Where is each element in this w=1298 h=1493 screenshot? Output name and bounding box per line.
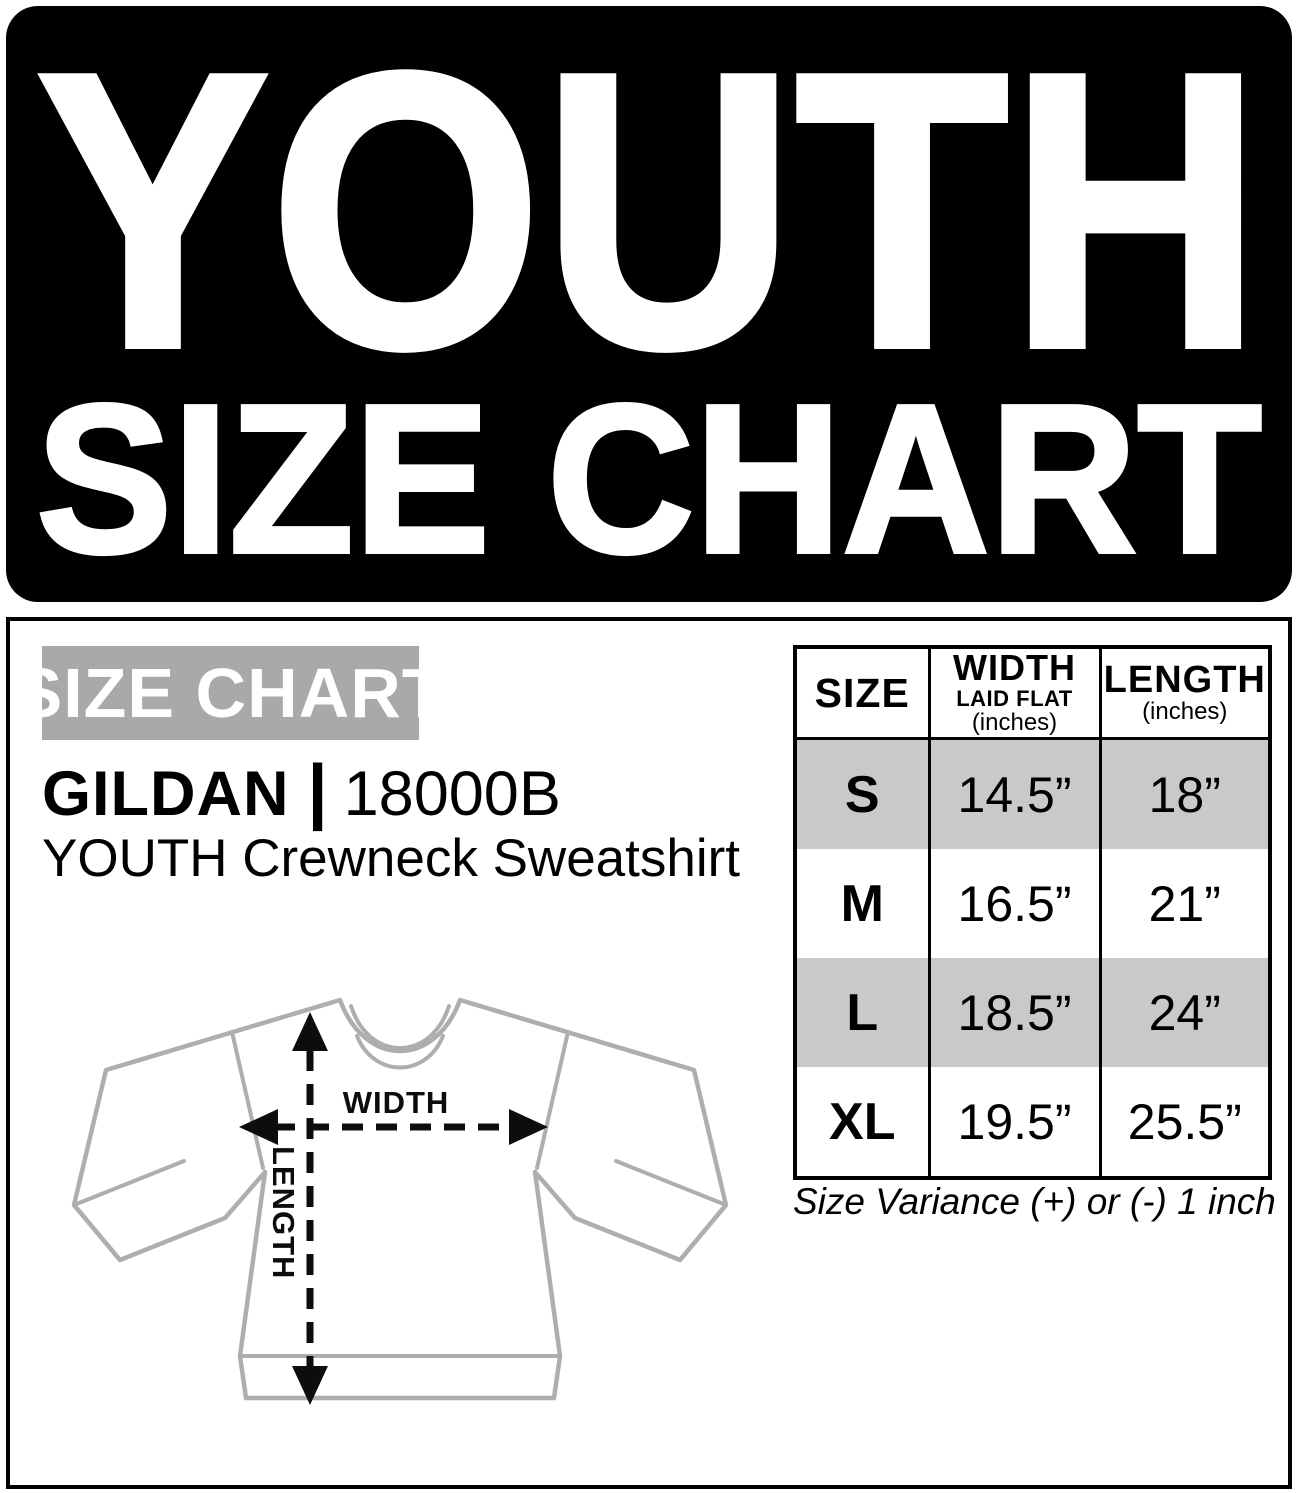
header-size: SIZE	[795, 647, 929, 739]
section-title: SIZE CHART	[16, 653, 446, 733]
product-name: YOUTH Crewneck Sweatshirt	[42, 828, 740, 889]
cell-size: L	[795, 958, 929, 1067]
header-length: LENGTH (inches)	[1100, 647, 1270, 739]
model-number: 18000B	[344, 758, 561, 830]
size-variance-note: Size Variance (+) or (-) 1 inch	[793, 1181, 1268, 1223]
width-arrow-label: WIDTH	[343, 1085, 450, 1120]
brand-name: GILDAN	[42, 758, 289, 830]
brand-separator: |	[307, 750, 327, 832]
title-banner-text: YOUTH SIZE CHART	[6, 6, 1292, 602]
section-title-banner: SIZE CHART	[42, 646, 419, 740]
banner-title-line2: SIZE CHART	[36, 360, 1262, 597]
cell-width: 19.5”	[929, 1067, 1100, 1178]
cell-width: 18.5”	[929, 958, 1100, 1067]
size-table: SIZE WIDTH LAID FLAT (inches) LENGTH (in…	[793, 645, 1272, 1180]
title-banner: YOUTH SIZE CHART	[6, 6, 1292, 602]
header-width: WIDTH LAID FLAT (inches)	[929, 647, 1100, 739]
cell-size: M	[795, 849, 929, 958]
cell-width: 16.5”	[929, 849, 1100, 958]
cell-size: XL	[795, 1067, 929, 1178]
sweatshirt-outline	[74, 1000, 726, 1398]
table-row-l: L 18.5” 24”	[795, 958, 1270, 1067]
cell-size: S	[795, 739, 929, 850]
youth-size-chart-graphic: YOUTH SIZE CHART SIZE CHART GILDAN | 180…	[0, 0, 1298, 1493]
cell-length: 24”	[1100, 958, 1270, 1067]
content-box: SIZE CHART GILDAN | 18000B YOUTH Crewnec…	[6, 617, 1292, 1489]
brand-line: GILDAN | 18000B	[42, 755, 561, 833]
cell-length: 21”	[1100, 849, 1270, 958]
table-row-m: M 16.5” 21”	[795, 849, 1270, 958]
table-row-s: S 14.5” 18”	[795, 739, 1270, 850]
sweatshirt-measurement-diagram: WIDTH LENGTH	[60, 950, 740, 1430]
cell-length: 18”	[1100, 739, 1270, 850]
cell-length: 25.5”	[1100, 1067, 1270, 1178]
size-table-header-row: SIZE WIDTH LAID FLAT (inches) LENGTH (in…	[795, 647, 1270, 739]
table-row-xl: XL 19.5” 25.5”	[795, 1067, 1270, 1178]
cell-width: 14.5”	[929, 739, 1100, 850]
length-arrow-label: LENGTH	[266, 1146, 301, 1279]
